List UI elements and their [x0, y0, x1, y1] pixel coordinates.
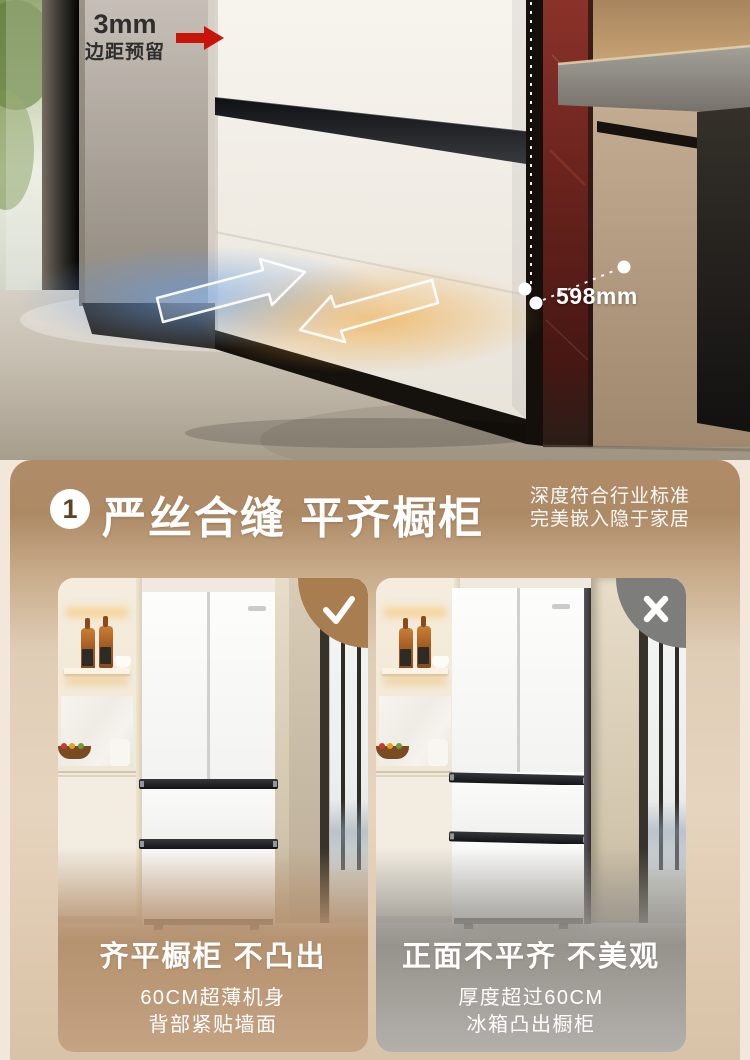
depth-label: 598mm [556, 283, 652, 310]
feature-card: 1 严丝合缝 平齐橱柜 深度符合行业标准 完美嵌入隐于家居 [10, 460, 740, 1060]
good-title: 齐平橱柜 不凸出 [58, 933, 368, 975]
feature-subtitle-line2: 完美嵌入隐于家居 [530, 508, 690, 531]
cross-icon [634, 590, 678, 630]
bottle [417, 626, 431, 668]
kettle [110, 739, 130, 766]
kitchen-photo: 3mm 边距预留 598mm [0, 0, 750, 460]
shelf [64, 668, 130, 674]
fridge-drawer [142, 789, 275, 839]
shelf [382, 668, 448, 674]
good-line1: 60CM超薄机身 [58, 981, 368, 1010]
feature-number-badge: 1 [50, 489, 90, 529]
fridge-door [452, 588, 517, 772]
comparison-panel-good: 齐平橱柜 不凸出 60CM超薄机身 背部紧贴墙面 [58, 578, 368, 1052]
check-icon [316, 590, 360, 630]
margin-value: 3mm [76, 10, 174, 40]
kitchen-illustration [0, 0, 750, 460]
bad-line2: 冰箱凸出橱柜 [376, 1008, 686, 1037]
handle-bar [139, 779, 278, 789]
fridge-door [210, 592, 275, 779]
fridge-door [142, 592, 207, 779]
good-line2: 背部紧贴墙面 [58, 1008, 368, 1037]
fridge-door [519, 588, 584, 772]
red-arrow-icon [176, 26, 226, 50]
bad-caption-overlay: 正面不平齐 不美观 厚度超过60CM 冰箱凸出橱柜 [376, 848, 686, 1052]
brand-logo [552, 604, 570, 609]
bad-line1: 厚度超过60CM [376, 981, 686, 1010]
feature-subtitle-line1: 深度符合行业标准 [530, 485, 690, 508]
handle-bar [449, 772, 588, 785]
feature-card-header: 1 严丝合缝 平齐橱柜 深度符合行业标准 完美嵌入隐于家居 [10, 460, 740, 578]
feature-title: 严丝合缝 平齐橱柜 [102, 482, 484, 546]
product-detail-image: 3mm 边距预留 598mm 1 严丝合缝 平齐橱柜 深度符合行业标准 完美嵌入… [0, 0, 750, 1060]
feature-subtitle: 深度符合行业标准 完美嵌入隐于家居 [530, 485, 690, 531]
brand-logo [248, 606, 266, 611]
cup [432, 656, 449, 668]
kettle [428, 739, 448, 766]
good-caption-overlay: 齐平橱柜 不凸出 60CM超薄机身 背部紧贴墙面 [58, 848, 368, 1052]
bottle [399, 628, 413, 670]
bottle [81, 628, 95, 670]
cup [114, 656, 131, 668]
counter [58, 766, 136, 773]
counter [376, 766, 454, 773]
comparison-panel-bad: 正面不平齐 不美观 厚度超过60CM 冰箱凸出橱柜 [376, 578, 686, 1052]
bad-title: 正面不平齐 不美观 [376, 933, 686, 975]
fridge-drawer [452, 785, 584, 833]
margin-text: 边距预留 [76, 43, 174, 64]
bottle [99, 626, 113, 668]
handle-bar [449, 831, 588, 844]
margin-annotation: 3mm 边距预留 [76, 10, 174, 64]
